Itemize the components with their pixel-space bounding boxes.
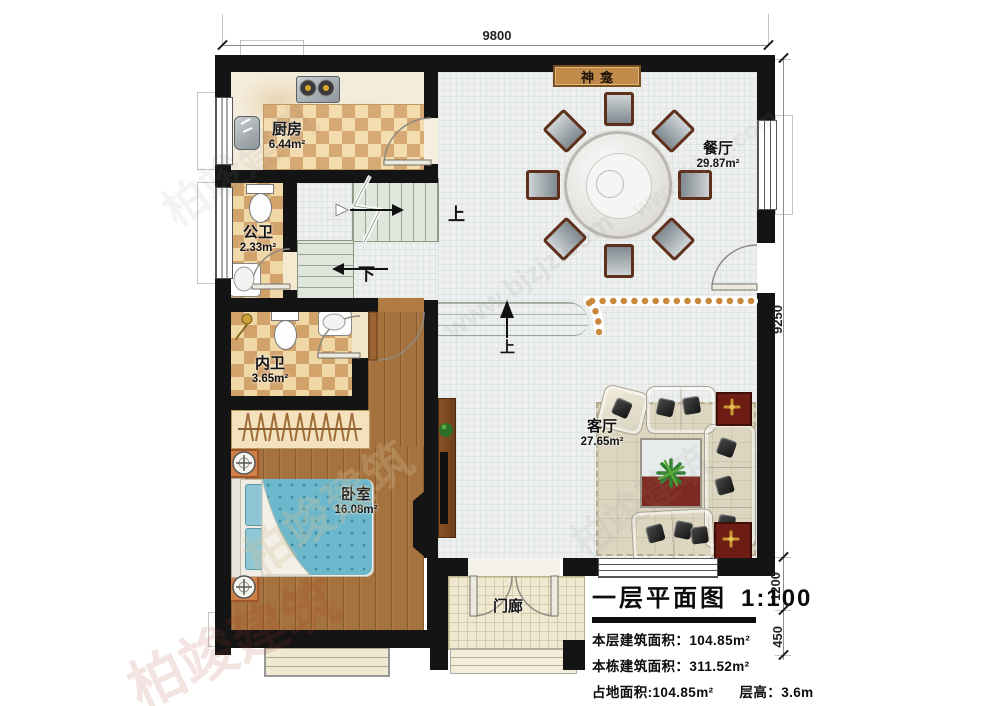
living-name: 客厅 <box>581 418 624 436</box>
room-label-porch: 门廊 <box>493 598 523 616</box>
plan-title: 一层平面图 <box>592 578 727 613</box>
room-label-bedroom: 卧室 16.08m² <box>335 486 378 517</box>
porch-steps <box>450 648 577 674</box>
floor-area-label: 本层建筑面积： <box>592 633 689 648</box>
wall-right-a <box>757 55 775 120</box>
kitchen-name: 厨房 <box>269 121 305 139</box>
window-living <box>598 558 718 578</box>
window-sill-dining <box>775 115 793 215</box>
dining-name: 餐厅 <box>697 140 740 158</box>
bath-sink <box>318 310 352 336</box>
stair-flight-up <box>352 178 439 242</box>
extension-line <box>768 14 769 46</box>
plan-scale: 1:100 <box>741 585 812 613</box>
wardrobe <box>231 410 370 449</box>
toilet <box>274 320 297 350</box>
room-label-public-bath: 公卫 2.33m² <box>240 224 276 255</box>
wall-top <box>215 55 775 72</box>
dimension-top-value: 9800 <box>467 28 527 43</box>
room-label-inner-bath: 内卫 3.65m² <box>252 355 288 386</box>
footprint-value: 104.85m² <box>653 685 714 700</box>
building-area-label: 本栋建筑面积： <box>592 659 689 674</box>
dining-chair <box>604 92 634 126</box>
door-opening-porch <box>468 558 560 576</box>
bath-sink <box>229 263 261 297</box>
bed-pillow <box>245 528 264 570</box>
door-opening-public-bath <box>283 252 297 290</box>
inner-bath-name: 内卫 <box>252 355 288 373</box>
dining-area: 29.87m² <box>697 158 740 172</box>
stair-up-label: 上 <box>448 200 465 225</box>
extension-line <box>222 14 223 46</box>
entry-step-walkway <box>438 302 588 336</box>
floor-plan-canvas: 神龛 <box>0 0 1000 706</box>
sofa-loveseat-bottom <box>631 508 716 564</box>
wall-living-bottom-left <box>563 558 598 576</box>
nightstand-top <box>229 449 259 478</box>
room-label-dining: 餐厅 29.87m² <box>697 140 740 171</box>
door-opening-bedroom <box>378 298 424 312</box>
door-opening-dining-side <box>757 243 775 293</box>
floor-area-value: 104.85m² <box>689 633 750 648</box>
floor-bedroom-corridor <box>368 300 424 447</box>
wall-porch-pier-left <box>448 558 468 576</box>
wall-kitchen-bottom <box>215 170 438 183</box>
room-label-living: 客厅 27.65m² <box>581 418 624 449</box>
living-tv <box>440 452 448 524</box>
height-value: 3.6m <box>781 685 813 700</box>
window-sill-kitchen <box>197 92 217 170</box>
title-block: 一层平面图 1:100 本层建筑面积：104.85m² 本栋建筑面积：311.5… <box>592 578 814 701</box>
window-kitchen <box>215 97 233 165</box>
wall-kitchen-right-stub <box>424 164 438 172</box>
room-label-kitchen: 厨房 6.44m² <box>269 121 305 152</box>
coffee-table <box>640 438 702 508</box>
wall-inner-bath-bottom <box>215 396 368 410</box>
wall-bedroom-living-divider <box>424 300 438 558</box>
bed-pillow <box>245 484 264 526</box>
dining-table-detail <box>596 170 624 198</box>
title-underline <box>592 617 756 623</box>
wall-bedroom-bottom <box>215 630 448 648</box>
side-table-top <box>716 392 752 426</box>
wall-left-a <box>215 55 231 97</box>
inner-bath-area: 3.65m² <box>252 373 288 387</box>
shrine-cabinet: 神龛 <box>553 65 641 87</box>
dimension-line-right <box>783 58 784 660</box>
window-public-bath <box>215 187 233 279</box>
public-bath-name: 公卫 <box>240 224 276 242</box>
dimension-line-top <box>222 45 768 46</box>
public-bath-area: 2.33m² <box>240 242 276 256</box>
building-area-value: 311.52m² <box>689 659 749 674</box>
window-sill-public-bath <box>197 182 217 284</box>
window-dining <box>757 120 777 210</box>
side-table-bottom <box>714 522 752 560</box>
footprint-label: 占地面积: <box>592 685 653 700</box>
kitchen-sink <box>234 116 260 150</box>
bedroom-name: 卧室 <box>335 486 378 504</box>
wall-left-c <box>215 277 231 655</box>
stair-down-label: 下 <box>358 260 375 285</box>
stair-flight-down <box>297 240 354 300</box>
wall-kitchen-right <box>424 72 438 118</box>
toilet <box>249 193 272 223</box>
porch-step-pier-left <box>430 640 448 670</box>
porch-name: 门廊 <box>493 598 523 616</box>
footprint-line: 占地面积:104.85m²层高：3.6m <box>592 681 814 701</box>
living-area: 27.65m² <box>581 436 624 450</box>
floor-area-line: 本层建筑面积：104.85m² <box>592 629 814 649</box>
dining-chair <box>526 170 560 200</box>
height-label: 层高： <box>740 685 782 700</box>
kitchen-area: 6.44m² <box>269 139 305 153</box>
bay-window <box>264 646 390 677</box>
dining-chair <box>678 170 712 200</box>
door-opening-kitchen <box>424 118 438 164</box>
wall-public-bath-right <box>283 183 297 252</box>
wall-living-bottom-right <box>716 558 775 576</box>
bedroom-area: 16.08m² <box>335 504 378 518</box>
entry-step-label: 上 <box>500 336 515 357</box>
shrine-label: 神龛 <box>581 67 619 86</box>
stove <box>296 76 340 103</box>
door-opening-inner-bath <box>352 312 368 358</box>
wall-inner-bath-top <box>215 298 378 312</box>
porch-step-pier-right <box>563 640 585 670</box>
wall-right-b <box>757 208 775 243</box>
dimension-right-value: 9250 <box>770 305 785 334</box>
dining-chair <box>604 244 634 278</box>
building-area-line: 本栋建筑面积：311.52m² <box>592 655 814 675</box>
